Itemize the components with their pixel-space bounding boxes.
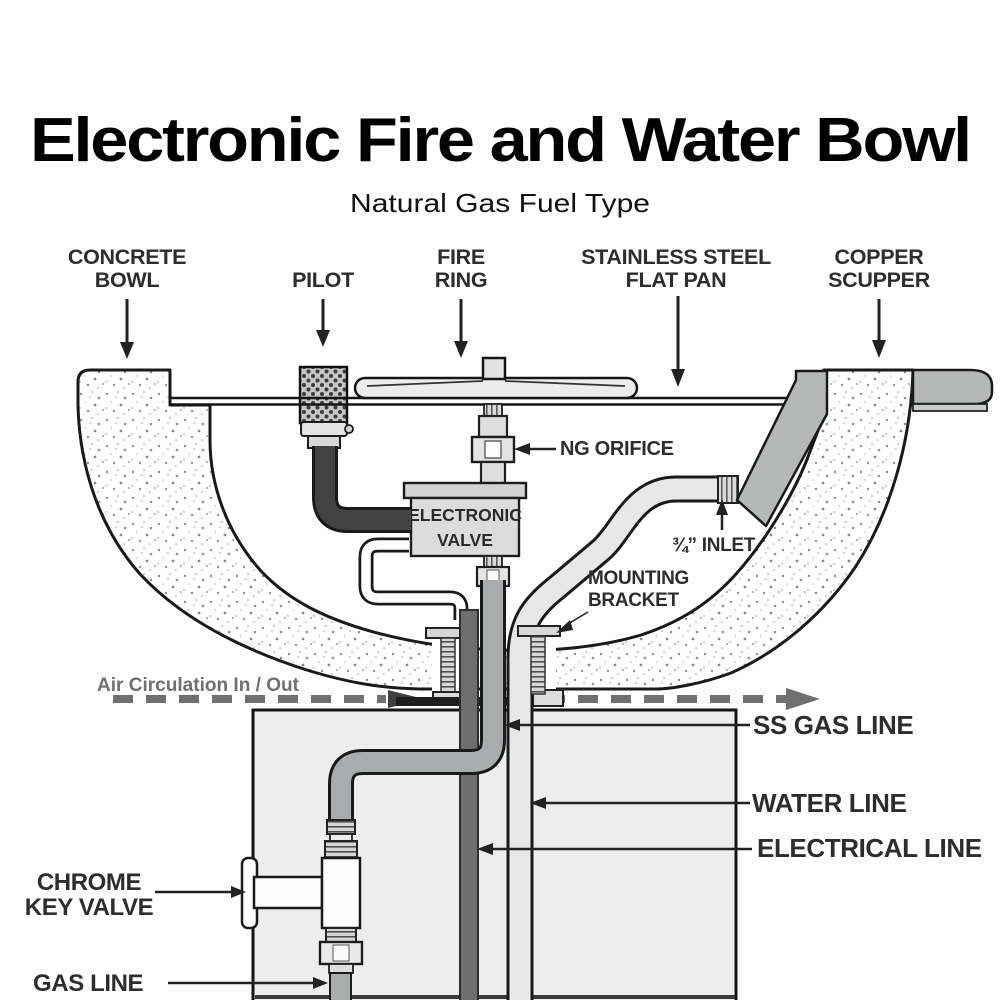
page-title: Electronic Fire and Water Bowl: [30, 106, 970, 175]
burner-stack: [472, 404, 514, 483]
electrical-line-label: ELECTRICAL LINE: [757, 833, 982, 863]
valve-label-line2: VALVE: [437, 530, 493, 550]
copper-scupper-label-line2: SCUPPER: [828, 268, 931, 292]
stack-threads-top: [484, 404, 502, 416]
flat-pan-arrowhead: [671, 369, 685, 387]
concrete-bowl-arrowhead: [120, 342, 134, 359]
key-valve-stem: [254, 877, 322, 908]
fire-ring: [355, 358, 637, 398]
label-chrome-key-valve: CHROME KEY VALVE: [25, 869, 246, 921]
key-valve-threads-bottom: [326, 928, 356, 942]
valve-outlet-threads: [484, 556, 502, 567]
copper-scupper-label-line1: COPPER: [835, 245, 925, 269]
diagram-page: Electronic Fire and Water Bowl Natural G…: [0, 0, 1000, 1000]
valve-label-line1: ELECTRONIC: [408, 505, 522, 525]
concrete-bowl-label-line2: BOWL: [95, 268, 160, 292]
key-valve-collar-top: [330, 834, 352, 841]
fire-ring-label-line1: FIRE: [437, 245, 485, 269]
key-valve-coupling: [325, 841, 357, 858]
fire-ring-bar: [355, 378, 637, 398]
concrete-bowl-label-line1: CONCRETE: [68, 245, 186, 269]
ss-gas-line-label: SS GAS LINE: [753, 710, 913, 740]
mounting-bracket-leader: [568, 612, 588, 624]
orifice-hex-face: [485, 441, 501, 458]
label-inlet: ¾” INLET: [672, 499, 756, 556]
label-fire-ring: FIRE RING: [435, 245, 488, 358]
chrome-key-valve-label-line1: CHROME: [37, 869, 142, 896]
label-copper-scupper: COPPER SCUPPER: [828, 245, 931, 358]
ng-orifice-arrowhead: [514, 443, 530, 455]
mounting-bracket-label-line2: BRACKET: [588, 590, 679, 611]
pilot-assembly: [301, 422, 411, 520]
scupper-lip: [913, 404, 987, 411]
page-subtitle: Natural Gas Fuel Type: [350, 188, 650, 218]
key-valve-hex-face: [333, 945, 349, 961]
air-circulation-label: Air Circulation In / Out: [97, 675, 300, 696]
label-pilot: PILOT: [292, 268, 354, 347]
bolt-shaft-left: [441, 638, 455, 696]
inlet-label: ¾” INLET: [672, 535, 756, 556]
bolt-shaft-right: [531, 636, 545, 694]
flat-pan-label-line2: FLAT PAN: [626, 268, 727, 292]
gas-line-pipe-bottom: [330, 973, 351, 1000]
bracket-plate-right: [518, 626, 560, 636]
gas-line-label: GAS LINE: [33, 970, 144, 997]
scupper-outer-cap: [913, 370, 992, 404]
key-valve-body: [322, 858, 360, 928]
air-arrowhead-end: [786, 688, 820, 710]
ng-orifice-label: NG ORIFICE: [560, 438, 674, 460]
label-ng-orifice: NG ORIFICE: [514, 438, 674, 460]
flat-pan-label-line1: STAINLESS STEEL: [581, 245, 771, 269]
pilot-arrowhead: [316, 330, 330, 347]
mounting-bracket-label-line1: MOUNTING: [588, 568, 689, 589]
fire-ring-label-line2: RING: [435, 268, 488, 292]
water-line-label: WATER LINE: [752, 788, 906, 818]
key-valve-threads-top: [327, 820, 355, 834]
pilot-collar: [301, 422, 347, 436]
pilot-head: [300, 367, 347, 423]
pilot-label: PILOT: [292, 268, 354, 292]
copper-scupper-arrowhead: [872, 340, 886, 358]
pilot-screw: [345, 425, 353, 433]
stack-block-lower: [481, 462, 505, 483]
inlet-threads: [718, 476, 738, 503]
fire-water-bowl-diagram: Electronic Fire and Water Bowl Natural G…: [0, 0, 1000, 1000]
fire-ring-hub: [483, 358, 505, 379]
key-valve-collar-bottom: [329, 964, 353, 973]
valve-flange: [404, 483, 526, 498]
stack-block-upper: [479, 416, 507, 437]
electrical-line-pipe: [460, 610, 478, 1000]
label-flat-pan: STAINLESS STEEL FLAT PAN: [581, 245, 771, 387]
chrome-key-valve-label-line2: KEY VALVE: [25, 894, 154, 921]
fire-ring-arrowhead: [454, 341, 468, 358]
ng-orifice-fitting: [472, 437, 514, 462]
electronic-valve: ELECTRONIC VALVE: [404, 483, 526, 586]
label-concrete-bowl: CONCRETE BOWL: [68, 245, 186, 359]
